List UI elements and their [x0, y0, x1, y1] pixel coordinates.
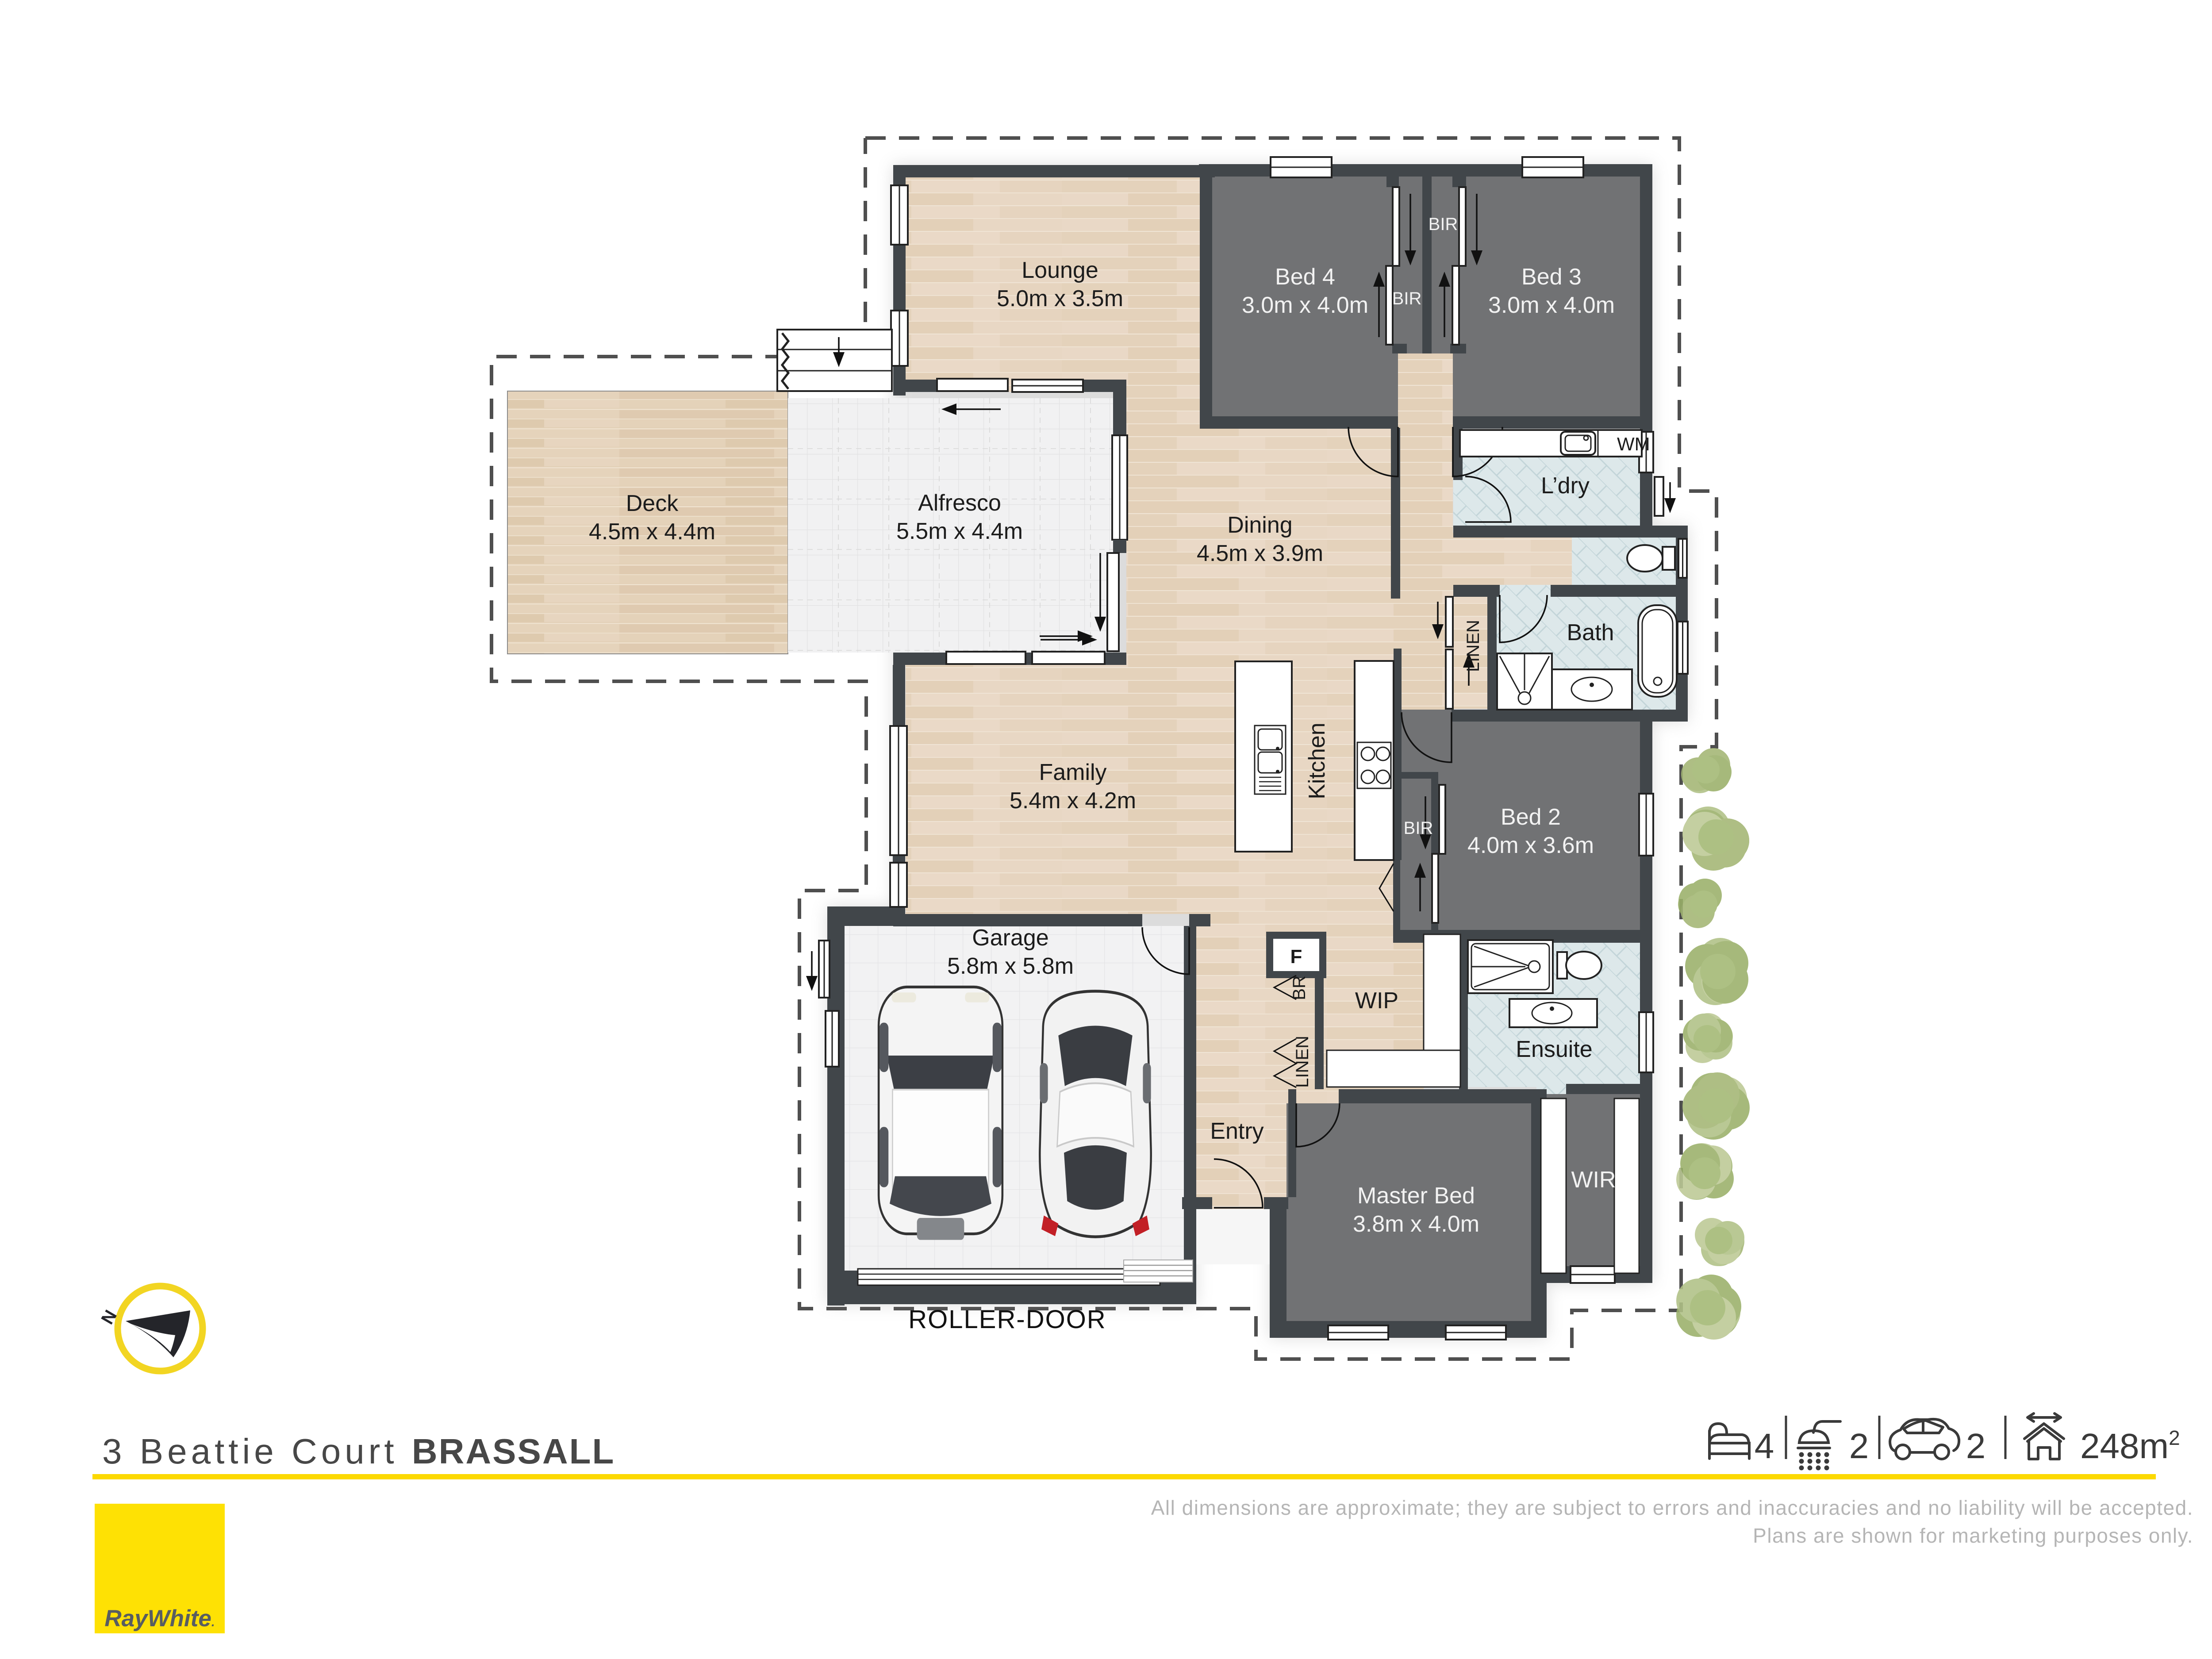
svg-text:4: 4 — [1755, 1426, 1774, 1466]
svg-text:Master Bed: Master Bed — [1357, 1183, 1475, 1209]
svg-text:LINEN: LINEN — [1463, 620, 1483, 672]
svg-text:L’dry: L’dry — [1541, 473, 1590, 499]
svg-text:Dining: Dining — [1227, 512, 1292, 538]
svg-text:Deck: Deck — [626, 491, 679, 516]
svg-text:Bed 2: Bed 2 — [1501, 804, 1561, 830]
svg-text:4.5m x 4.4m: 4.5m x 4.4m — [589, 519, 715, 545]
svg-text:WIP: WIP — [1355, 988, 1398, 1014]
svg-text:WIR: WIR — [1571, 1167, 1616, 1193]
svg-text:5.4m x 4.2m: 5.4m x 4.2m — [1010, 788, 1136, 814]
svg-text:BR: BR — [1290, 975, 1309, 1000]
svg-text:Alfresco: Alfresco — [918, 490, 1001, 516]
svg-text:Entry: Entry — [1210, 1118, 1263, 1144]
svg-text:Family: Family — [1039, 760, 1106, 785]
svg-text:5.5m x 4.4m: 5.5m x 4.4m — [896, 518, 1023, 544]
svg-text:2: 2 — [1849, 1426, 1869, 1466]
svg-text:Kitchen: Kitchen — [1304, 722, 1330, 799]
svg-text:F: F — [1290, 946, 1302, 968]
svg-text:4.5m x 3.9m: 4.5m x 3.9m — [1197, 541, 1323, 566]
svg-text:All dimensions are approximate: All dimensions are approximate; they are… — [1151, 1496, 2193, 1519]
svg-text:5.8m x 5.8m: 5.8m x 5.8m — [947, 953, 1074, 979]
svg-text:ROLLER-DOOR: ROLLER-DOOR — [908, 1305, 1106, 1334]
svg-text:Lounge: Lounge — [1022, 257, 1098, 283]
svg-text:BIR: BIR — [1404, 818, 1433, 838]
svg-text:5.0m x 3.5m: 5.0m x 3.5m — [997, 286, 1123, 311]
svg-text:2: 2 — [1966, 1426, 1986, 1466]
svg-text:Plans are shown for marketing: Plans are shown for marketing purposes o… — [1753, 1524, 2193, 1547]
svg-text:3 Beattie Court BRASSALL: 3 Beattie Court BRASSALL — [102, 1432, 615, 1471]
svg-text:RayWhite.: RayWhite. — [104, 1605, 215, 1632]
svg-text:Bed 4: Bed 4 — [1275, 264, 1335, 290]
svg-text:Garage: Garage — [972, 925, 1048, 951]
svg-text:LINEN: LINEN — [1293, 1036, 1312, 1088]
svg-text:BIR: BIR — [1392, 289, 1422, 308]
svg-text:248m2: 248m2 — [2080, 1426, 2180, 1466]
svg-text:3.8m x 4.0m: 3.8m x 4.0m — [1353, 1211, 1479, 1237]
svg-text:3.0m x 4.0m: 3.0m x 4.0m — [1242, 292, 1368, 318]
svg-text:BIR: BIR — [1429, 215, 1458, 234]
svg-text:3.0m x 4.0m: 3.0m x 4.0m — [1488, 292, 1615, 318]
svg-text:Bed 3: Bed 3 — [1521, 264, 1582, 290]
svg-text:Ensuite: Ensuite — [1516, 1037, 1592, 1062]
svg-text:WM: WM — [1617, 434, 1650, 454]
svg-text:4.0m x 3.6m: 4.0m x 3.6m — [1467, 833, 1594, 858]
svg-text:Bath: Bath — [1567, 620, 1614, 645]
